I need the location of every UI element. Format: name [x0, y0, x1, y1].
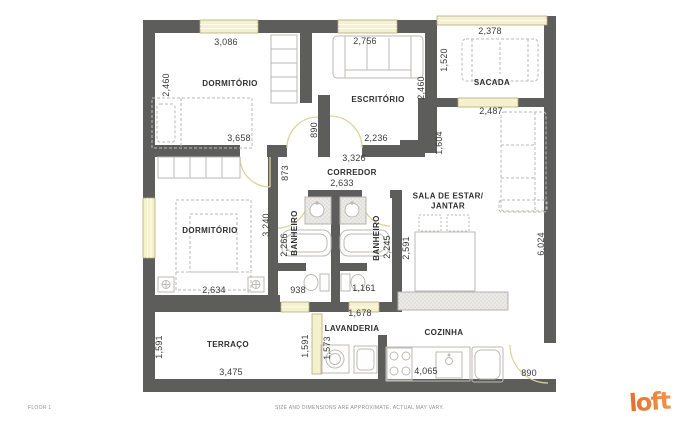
sofa-escritorio — [333, 36, 423, 78]
wardrobe-dormitorio1 — [271, 35, 297, 103]
window-escritorio — [338, 20, 397, 33]
wall-dormitorio1-right — [300, 20, 312, 103]
sliding-door-sacada — [458, 98, 518, 107]
door-dormitorio1 — [287, 117, 318, 148]
outer-wall-bottom — [143, 379, 556, 392]
kitchen-peninsula-counter — [398, 292, 508, 310]
door-cozinha-entry — [510, 345, 548, 383]
vanity-banheiro-left — [305, 197, 331, 224]
washing-machine — [321, 345, 349, 373]
bed-dormitorio2 — [176, 200, 251, 290]
door-banheiro-left — [278, 198, 308, 228]
bed-dormitorio1 — [152, 98, 252, 148]
window-banheiro-right — [349, 302, 379, 312]
kitchen-counter — [386, 347, 470, 381]
wall-corridor-top-left — [143, 145, 240, 157]
toilet-left — [304, 274, 329, 291]
wall-corridor-top-stub — [267, 145, 287, 157]
railing-sacada — [437, 16, 547, 25]
bathtub-right — [340, 230, 389, 256]
wall-corridor-top-right — [362, 145, 425, 157]
fridge — [472, 347, 503, 382]
laundry-tub — [354, 346, 377, 373]
toilet-right — [341, 274, 365, 291]
wall-toilet-nook-right — [340, 263, 367, 271]
bathtub-left — [282, 230, 331, 256]
outer-wall-right — [544, 16, 556, 343]
disclaimer-text: SIZE AND DIMENSIONS ARE APPROXIMATE. ACT… — [275, 405, 444, 411]
sofa-sacada — [462, 39, 538, 81]
wall-bath-divider — [331, 190, 340, 312]
wardrobe-dormitorio2 — [158, 157, 240, 178]
loft-logo: loft — [620, 384, 680, 420]
door-dormitorio2 — [240, 157, 270, 187]
wall-dormitorio2-bottom — [143, 295, 280, 312]
floorplan-page: DORMITÓRIOESCRITÓRIOSACADACORREDORSALA D… — [0, 0, 691, 432]
floorplan-drawing — [0, 0, 691, 432]
sofa-sala — [499, 112, 547, 212]
wall-door-stub — [318, 95, 330, 157]
furniture — [152, 35, 547, 382]
vanity-banheiro-right — [340, 197, 366, 224]
window-banheiro-left — [281, 302, 309, 312]
floor-label: FLOOR 1 — [28, 405, 52, 411]
wall-toilet-nook-left — [278, 263, 306, 271]
nightstand-left — [158, 277, 174, 292]
door-escritorio — [330, 116, 362, 148]
window-dormitorio1 — [200, 20, 258, 33]
window-dormitorio2 — [143, 198, 155, 258]
loft-logo-text: loft — [628, 387, 672, 418]
